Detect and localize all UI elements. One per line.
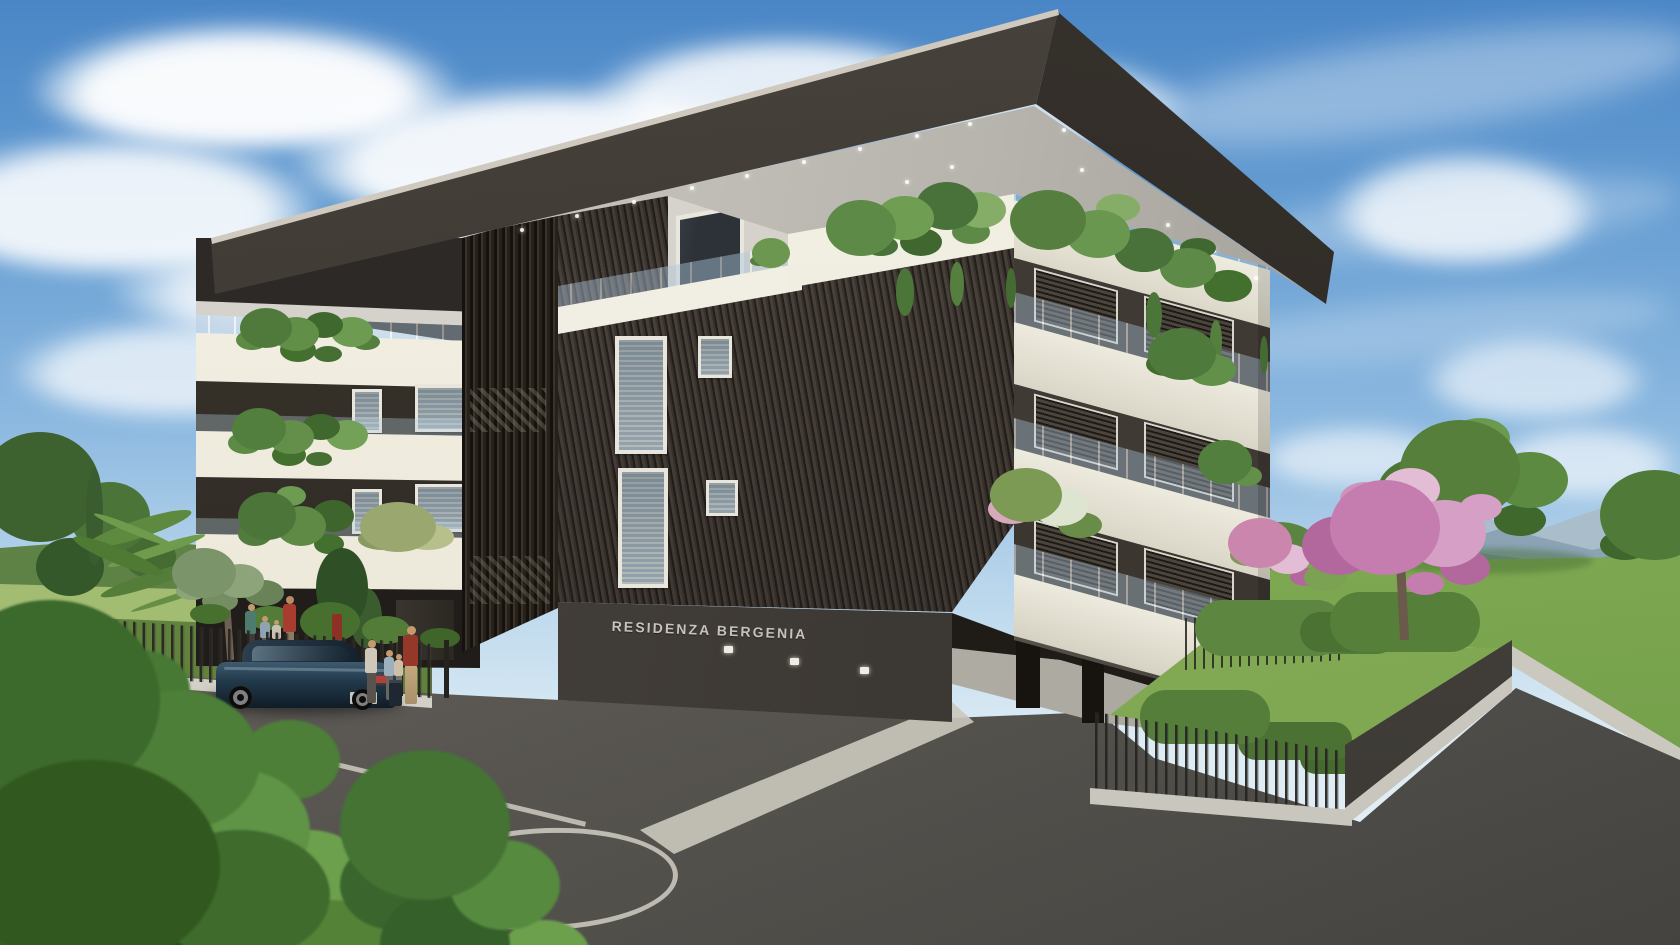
balcony-plants-west-3 — [240, 308, 292, 348]
woman-light-top — [365, 648, 377, 673]
child-blue-top — [384, 657, 394, 676]
penthouse-plants-right — [1010, 190, 1086, 250]
person-head — [248, 604, 255, 611]
facade-light — [724, 646, 733, 653]
window-glass — [622, 472, 664, 584]
red-case — [332, 614, 342, 640]
window-glass — [701, 339, 729, 375]
se-balcony-plant-2 — [1198, 440, 1252, 484]
stair-glimpse — [470, 388, 546, 432]
woman-head — [368, 640, 376, 648]
garden-hedge — [1195, 600, 1345, 656]
facade-light — [790, 658, 799, 665]
balcony-plants-west-1 — [238, 492, 296, 540]
car-window — [252, 646, 352, 661]
stair-glimpse — [470, 556, 550, 604]
pale-grass-bush — [360, 502, 436, 552]
window-glass — [619, 340, 663, 450]
child-head — [386, 650, 393, 657]
foreground-shrub-center — [340, 750, 510, 900]
se-flower-box-white — [990, 468, 1062, 522]
railing-shrub — [752, 238, 790, 268]
facade-light — [860, 667, 869, 674]
trailing-plant — [896, 268, 914, 316]
car-wheel-front — [229, 686, 252, 709]
se-flower-box-pink — [1228, 518, 1292, 568]
window-glass — [709, 483, 735, 513]
person-red-dress — [283, 604, 296, 632]
child-beige-top — [394, 660, 403, 676]
man-red-shirt — [403, 635, 418, 666]
scene-architectural-render: RESIDENZA BERGENIA — [0, 0, 1680, 945]
penthouse-plants-left — [826, 200, 896, 256]
se-balcony-plant-3 — [1148, 328, 1216, 380]
pink-flowering-tree — [1330, 480, 1440, 575]
tree-trunk — [1457, 528, 1468, 582]
gate-post — [444, 640, 449, 698]
man-head — [407, 626, 416, 635]
person-head — [286, 596, 294, 604]
balcony-plants-west-2 — [232, 408, 286, 450]
man-tan-pants — [405, 666, 417, 704]
woman-legs — [367, 673, 376, 703]
luggage — [389, 680, 402, 706]
trailing-plant — [1146, 292, 1162, 338]
olive-tree-canopy — [172, 548, 236, 598]
